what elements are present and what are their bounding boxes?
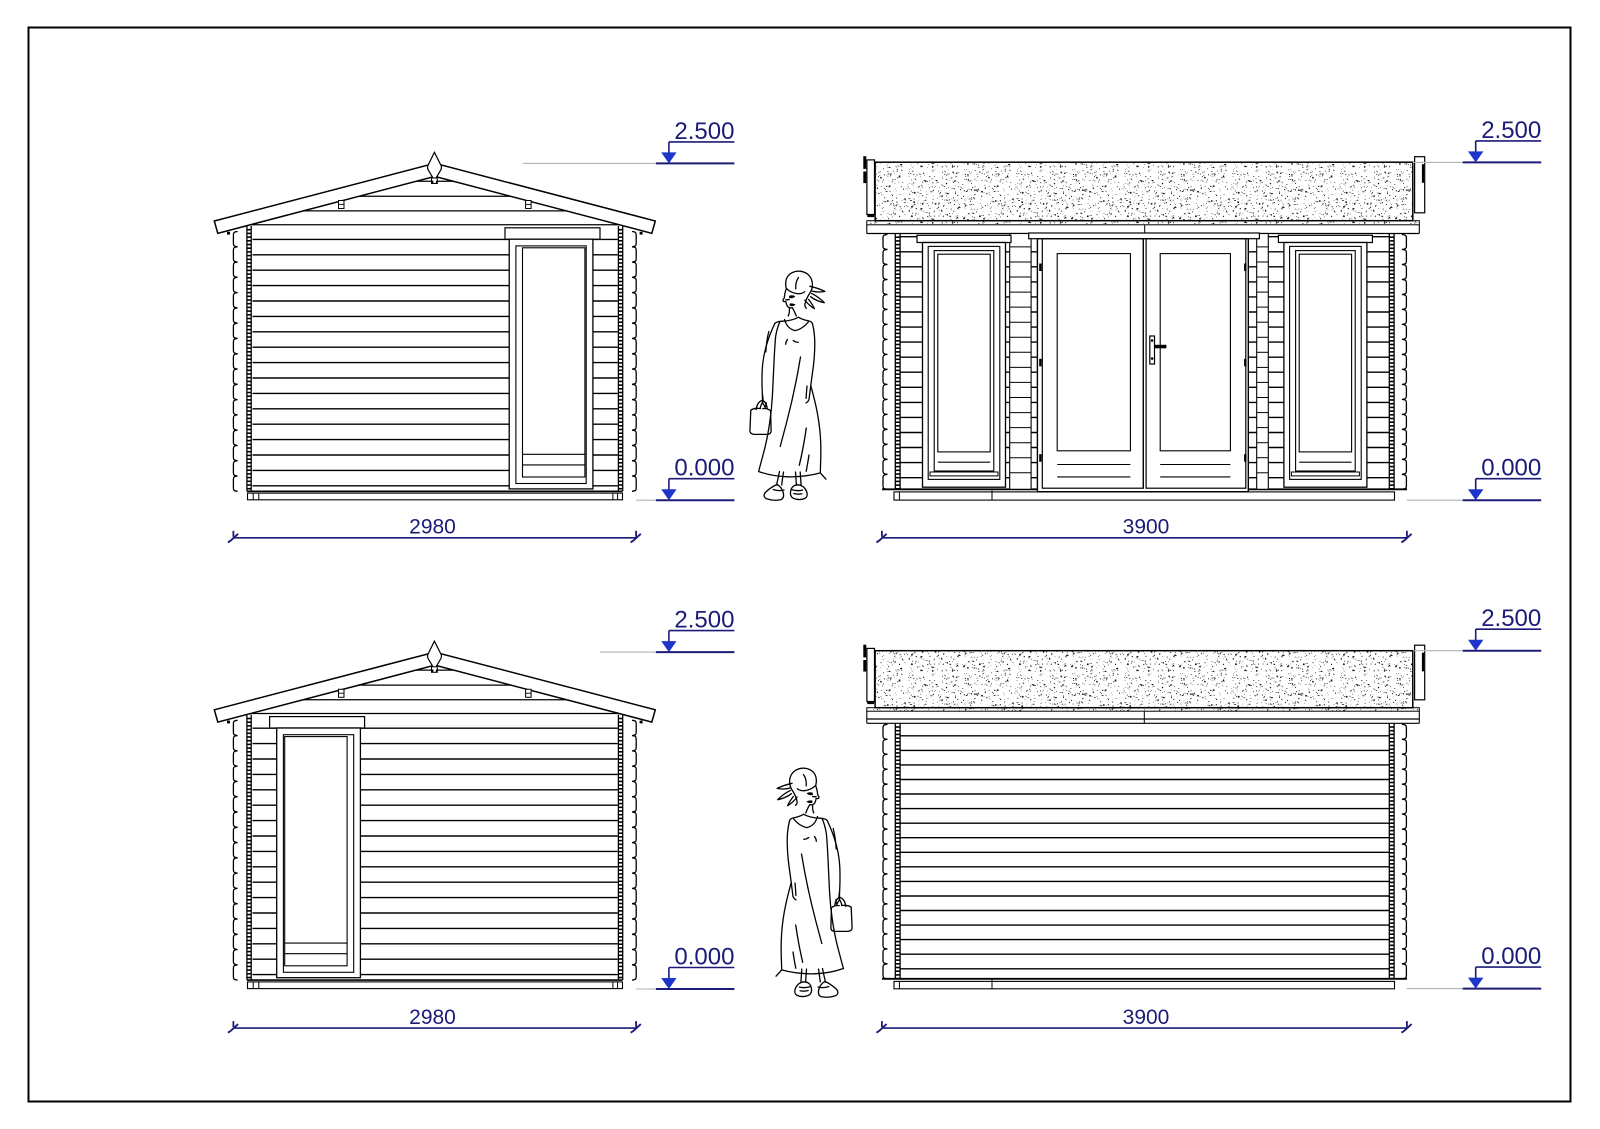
- svg-text:2.500: 2.500: [674, 118, 734, 145]
- svg-text:0.000: 0.000: [674, 944, 734, 971]
- svg-text:3900: 3900: [1123, 1006, 1170, 1029]
- svg-text:2.500: 2.500: [674, 607, 734, 634]
- svg-text:0.000: 0.000: [1481, 455, 1541, 482]
- svg-text:2980: 2980: [409, 516, 456, 539]
- svg-text:2.500: 2.500: [1481, 605, 1541, 632]
- svg-text:2.500: 2.500: [1481, 117, 1541, 144]
- svg-text:0.000: 0.000: [1481, 943, 1541, 970]
- svg-text:2980: 2980: [409, 1006, 456, 1029]
- svg-text:3900: 3900: [1123, 516, 1170, 539]
- svg-text:0.000: 0.000: [674, 455, 734, 482]
